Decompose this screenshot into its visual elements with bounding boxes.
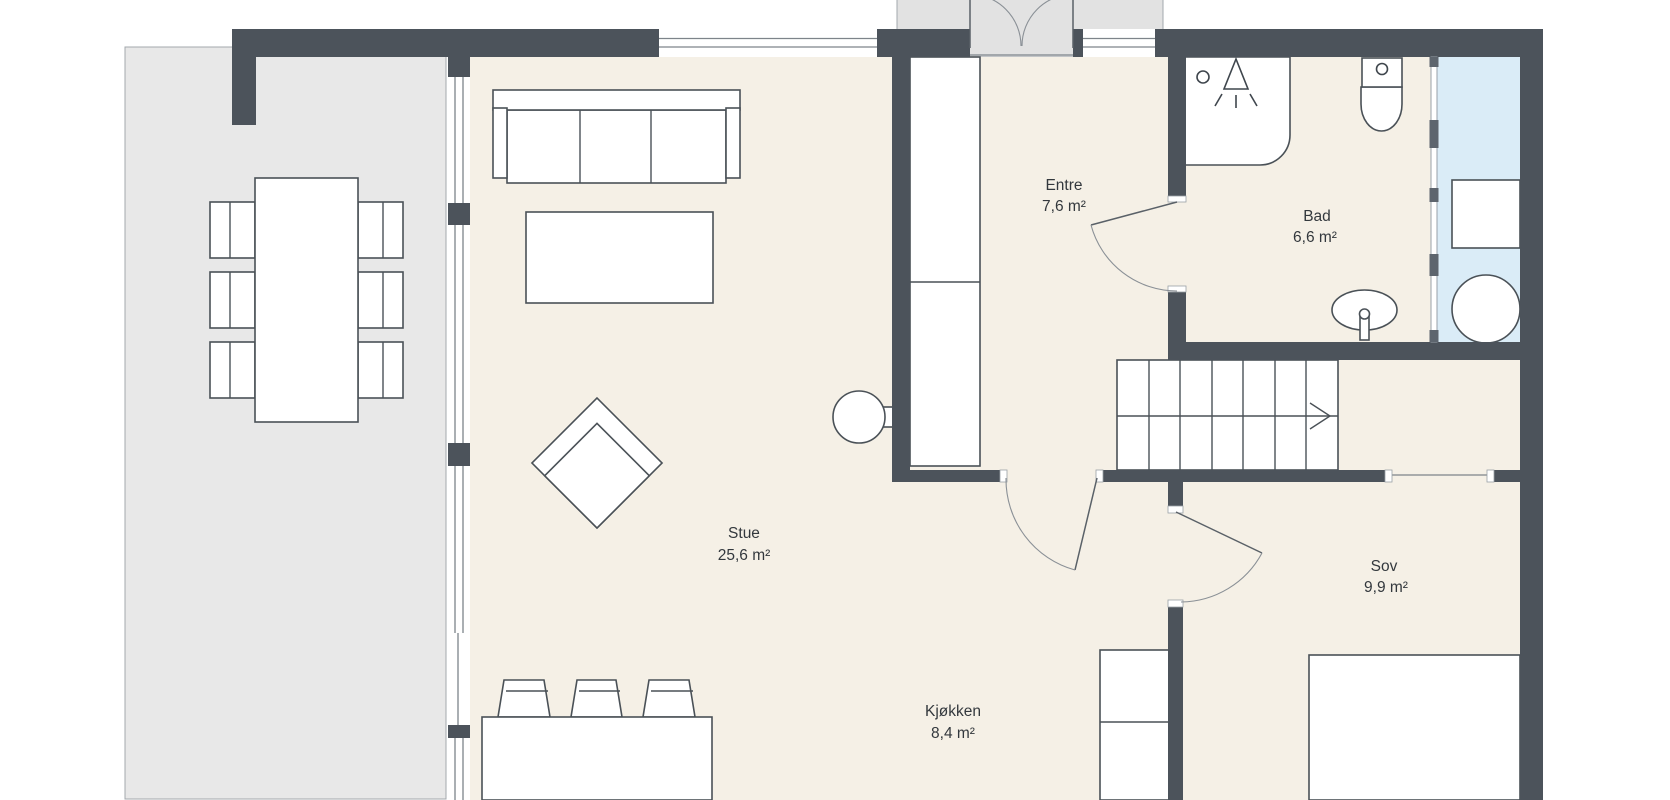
window-left-1 bbox=[448, 77, 470, 203]
wall-top-left bbox=[232, 29, 659, 57]
wall-top-pier bbox=[1073, 29, 1083, 57]
bar-stool bbox=[643, 680, 695, 717]
wall-left-pier-3 bbox=[448, 443, 470, 466]
terrace-floor bbox=[125, 47, 446, 799]
room-name: Sov bbox=[1371, 558, 1398, 575]
room-area: 9,9 m² bbox=[1364, 579, 1408, 596]
sofa bbox=[493, 90, 740, 183]
window-top-entre bbox=[1083, 29, 1155, 57]
window-left-4 bbox=[448, 738, 470, 800]
toilet-bowl bbox=[1361, 87, 1402, 131]
toilet-cistern bbox=[1362, 58, 1402, 87]
bar-stool bbox=[498, 680, 550, 717]
wall-entre-bad-upper bbox=[1168, 57, 1186, 202]
dining-chair bbox=[210, 202, 255, 258]
room-area: 6,6 m² bbox=[1293, 229, 1337, 246]
floor-plan-canvas: Stue 25,6 m² Kjøkken 8,4 m² Entre 7,6 m²… bbox=[0, 0, 1670, 800]
stairs bbox=[1117, 360, 1338, 470]
bed bbox=[1309, 655, 1520, 800]
bar-stool bbox=[571, 680, 622, 717]
wall-bad-bottom bbox=[1168, 342, 1543, 360]
room-name: Kjøkken bbox=[925, 703, 981, 720]
window-left-2 bbox=[448, 225, 470, 443]
room-area: 7,6 m² bbox=[1042, 198, 1086, 215]
dining-chair bbox=[358, 342, 403, 398]
wall-entre-bottom-left bbox=[892, 470, 1006, 482]
wall-top-right bbox=[1155, 29, 1543, 57]
room-area: 25,6 m² bbox=[718, 547, 771, 564]
wall-left-pier-1 bbox=[448, 57, 470, 77]
wardrobe-cabinet bbox=[910, 57, 980, 466]
wall-sov-top-stub bbox=[1493, 470, 1520, 482]
room-name: Bad bbox=[1303, 208, 1331, 225]
sofa-backrest bbox=[493, 90, 740, 110]
opening-hall-sov bbox=[1385, 468, 1494, 484]
coffee-table bbox=[526, 212, 713, 303]
kitchen-island-group bbox=[482, 680, 712, 800]
toilet bbox=[1361, 58, 1402, 131]
wall-under-stairs bbox=[1097, 470, 1389, 482]
wall-left-pier-2 bbox=[448, 203, 470, 225]
shower bbox=[1183, 57, 1290, 165]
kitchen-island bbox=[482, 717, 712, 800]
wall-stue-entre bbox=[892, 57, 910, 482]
wall-terrace-stub bbox=[232, 57, 256, 125]
sofa-armrest-left bbox=[493, 108, 507, 178]
room-area: 8,4 m² bbox=[931, 725, 975, 742]
wall-kjokken-sov bbox=[1168, 602, 1183, 800]
dining-chair bbox=[210, 272, 255, 328]
dining-chair bbox=[210, 342, 255, 398]
tall-kitchen-cabinet bbox=[1100, 650, 1170, 800]
room-name: Stue bbox=[728, 525, 760, 542]
dining-table bbox=[255, 178, 358, 422]
washing-machine bbox=[1452, 180, 1520, 248]
wall-right bbox=[1520, 29, 1543, 800]
room-name: Entre bbox=[1045, 177, 1082, 194]
wall-entre-bad-lower bbox=[1168, 292, 1186, 342]
floor-plan-drawing: Stue 25,6 m² Kjøkken 8,4 m² Entre 7,6 m²… bbox=[0, 0, 1670, 800]
dining-group bbox=[210, 178, 403, 422]
window-left-3 bbox=[448, 466, 470, 633]
dining-chair bbox=[358, 272, 403, 328]
wall-left-pier-4 bbox=[448, 725, 470, 738]
wall-top-mid bbox=[877, 29, 970, 57]
water-heater bbox=[1452, 275, 1520, 343]
glass-partition bbox=[1430, 57, 1439, 342]
sofa-armrest-right bbox=[726, 108, 740, 178]
window-top-living bbox=[659, 29, 877, 57]
dining-chair bbox=[358, 202, 403, 258]
